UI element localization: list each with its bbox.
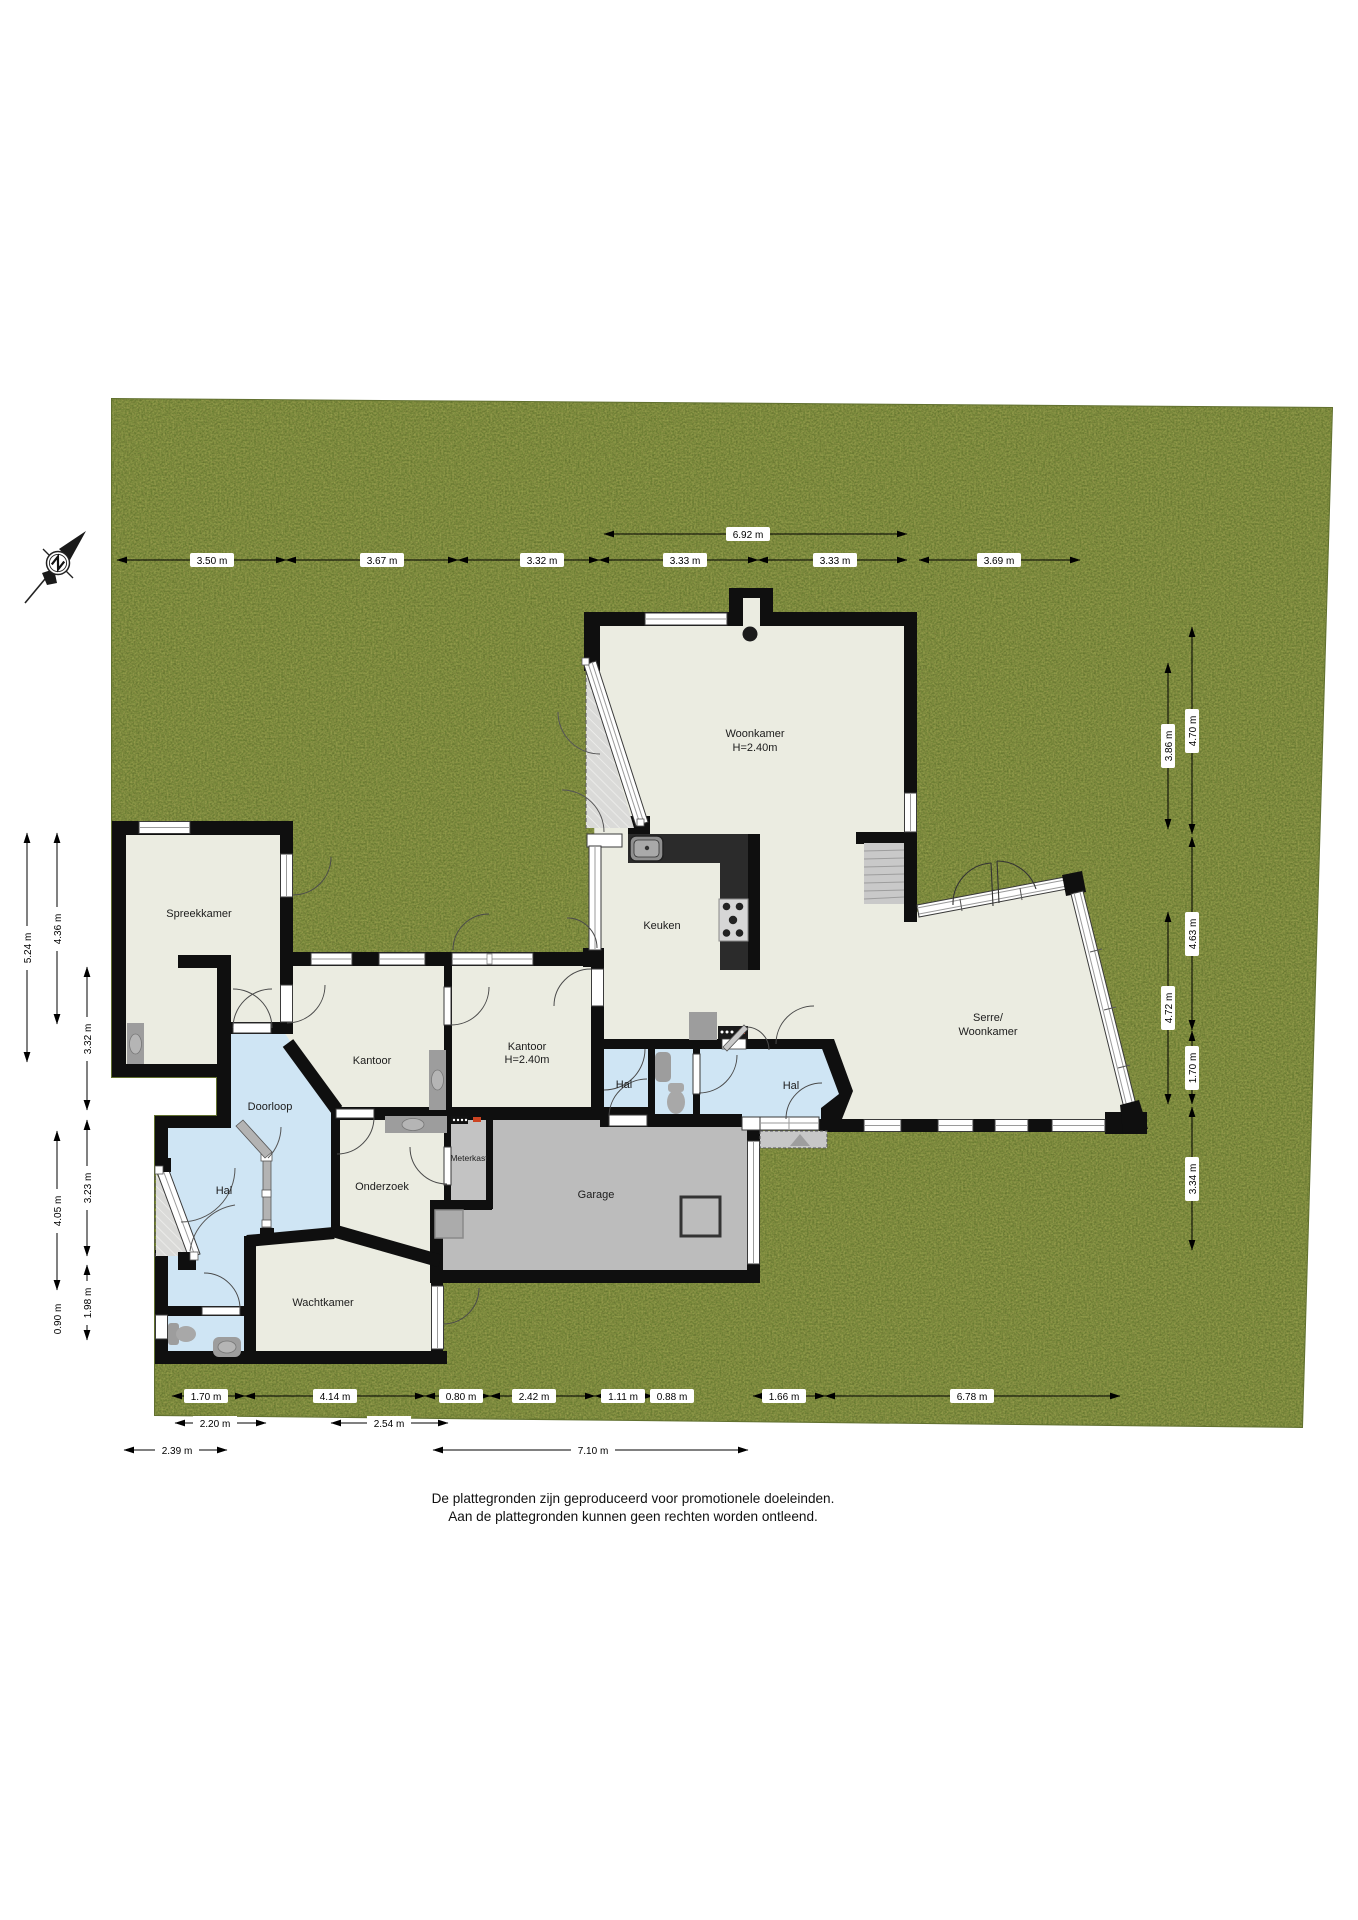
svg-text:7.10 m: 7.10 m	[578, 1446, 609, 1457]
svg-text:De plattegronden zijn geproduc: De plattegronden zijn geproduceerd voor …	[432, 1491, 835, 1506]
svg-text:6.92 m: 6.92 m	[733, 530, 764, 541]
svg-text:4.72 m: 4.72 m	[1164, 993, 1175, 1024]
svg-text:Onderzoek: Onderzoek	[355, 1181, 409, 1193]
svg-text:Woonkamer: Woonkamer	[958, 1026, 1017, 1038]
svg-text:3.86 m: 3.86 m	[1164, 731, 1175, 762]
svg-text:3.33 m: 3.33 m	[670, 556, 701, 567]
svg-text:Kantoor: Kantoor	[353, 1055, 392, 1067]
svg-text:Wachtkamer: Wachtkamer	[292, 1297, 354, 1309]
svg-text:Aan de plattegronden kunnen ge: Aan de plattegronden kunnen geen rechten…	[448, 1509, 818, 1524]
svg-text:Keuken: Keuken	[643, 920, 680, 932]
svg-text:4.36 m: 4.36 m	[53, 914, 64, 945]
svg-text:4.63 m: 4.63 m	[1188, 919, 1199, 950]
svg-text:3.50 m: 3.50 m	[197, 556, 228, 567]
svg-text:Doorloop: Doorloop	[248, 1101, 293, 1113]
svg-text:Meterkast: Meterkast	[450, 1153, 488, 1163]
svg-text:Hal: Hal	[616, 1079, 633, 1091]
svg-text:2.39 m: 2.39 m	[162, 1446, 193, 1457]
svg-text:Hal: Hal	[783, 1080, 800, 1092]
svg-text:0.90 m: 0.90 m	[53, 1304, 64, 1335]
svg-text:2.20 m: 2.20 m	[200, 1419, 231, 1430]
svg-text:Spreekkamer: Spreekkamer	[166, 908, 232, 920]
svg-text:3.33 m: 3.33 m	[820, 556, 851, 567]
svg-text:6.78 m: 6.78 m	[957, 1392, 988, 1403]
svg-text:3.69 m: 3.69 m	[984, 556, 1015, 567]
svg-text:3.32 m: 3.32 m	[83, 1024, 94, 1055]
svg-text:1.70 m: 1.70 m	[191, 1392, 222, 1403]
svg-text:2.42 m: 2.42 m	[519, 1392, 550, 1403]
svg-text:4.70 m: 4.70 m	[1188, 716, 1199, 747]
svg-text:5.24 m: 5.24 m	[23, 933, 34, 964]
svg-text:Garage: Garage	[578, 1189, 615, 1201]
svg-text:0.80 m: 0.80 m	[446, 1392, 477, 1403]
svg-text:0.88 m: 0.88 m	[657, 1392, 688, 1403]
svg-text:1.98 m: 1.98 m	[83, 1288, 94, 1319]
svg-text:3.32 m: 3.32 m	[527, 556, 558, 567]
svg-text:H=2.40m: H=2.40m	[733, 742, 778, 754]
svg-text:4.14 m: 4.14 m	[320, 1392, 351, 1403]
svg-text:3.67 m: 3.67 m	[367, 556, 398, 567]
svg-text:3.23 m: 3.23 m	[83, 1173, 94, 1204]
svg-text:1.11 m: 1.11 m	[608, 1392, 638, 1403]
svg-text:1.66 m: 1.66 m	[769, 1392, 800, 1403]
svg-text:3.34 m: 3.34 m	[1188, 1164, 1199, 1195]
svg-text:Serre/: Serre/	[973, 1012, 1004, 1024]
svg-text:H=2.40m: H=2.40m	[505, 1054, 550, 1066]
svg-text:Woonkamer: Woonkamer	[725, 728, 784, 740]
svg-text:4.05 m: 4.05 m	[53, 1196, 64, 1227]
svg-text:Hal: Hal	[216, 1185, 233, 1197]
svg-text:1.70 m: 1.70 m	[1188, 1053, 1199, 1084]
svg-text:2.54 m: 2.54 m	[374, 1419, 405, 1430]
svg-text:Kantoor: Kantoor	[508, 1041, 547, 1053]
